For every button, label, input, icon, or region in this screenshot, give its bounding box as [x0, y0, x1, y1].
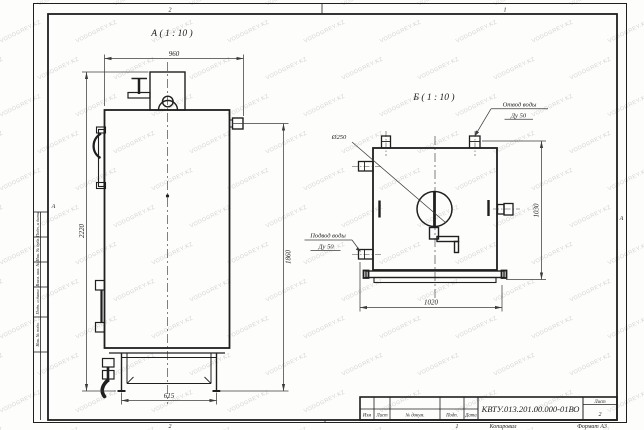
- svg-text:1020: 1020: [424, 299, 439, 307]
- upper-door-latch: [94, 127, 106, 189]
- zone-letter-right: А: [619, 216, 624, 222]
- zone-letter-left: А: [51, 204, 56, 210]
- svg-text:615: 615: [164, 392, 175, 400]
- center-mark: [166, 194, 169, 197]
- col-list: Лист: [375, 414, 388, 419]
- inlet-label-line2: Ду 50: [317, 244, 334, 251]
- outlet-label-line1: Отвод воды: [503, 102, 537, 109]
- view-a-front: А ( 1 : 10 ): [78, 28, 293, 405]
- boiler-body-outline: [105, 110, 230, 348]
- sheet-number: 2: [599, 412, 602, 418]
- svg-text:960: 960: [169, 50, 180, 58]
- lower-door-hinges: [96, 281, 105, 333]
- col-ndokum: № докум.: [404, 413, 424, 419]
- strip-caption-vzam-inv: Взам. инв. №: [35, 262, 40, 286]
- base-stand: [109, 353, 225, 391]
- strip-caption-inv-dubl: Инв. № дубл.: [35, 238, 40, 263]
- dimension-1030: 1030: [482, 141, 546, 280]
- dimension-615: 615: [122, 392, 217, 405]
- inlet-label-line1: Подвод воды: [309, 233, 346, 240]
- title-block: Изм Лист № докум. Подп. Дата КВТУ.013.20…: [360, 397, 617, 420]
- view-a-label: А ( 1 : 10 ): [150, 28, 192, 39]
- zone-number-top-2: 2: [169, 8, 172, 14]
- footer-copied: Копировал: [489, 424, 517, 430]
- doc-number: КВТУ.013.201.00.000-01ВО: [481, 404, 580, 414]
- footer-format: Формат А3: [577, 424, 607, 430]
- svg-text:1030: 1030: [533, 203, 541, 218]
- dimension-1860: 1860: [221, 124, 293, 392]
- inlet-pipe: [352, 250, 381, 260]
- svg-text:2220: 2220: [78, 224, 86, 239]
- view-b-label: Б ( 1 : 10 ): [412, 92, 454, 103]
- top-fitting-left: [382, 131, 391, 156]
- outlet-label-line2: Ду 50: [510, 113, 527, 120]
- drawing-canvas: Подп. и дата Инв. № дубл. Взам. инв. № П…: [0, 0, 644, 430]
- right-fitting: [493, 204, 520, 216]
- diameter-label: Ø250: [331, 134, 347, 141]
- col-izm: Изм: [362, 414, 371, 419]
- drawing-sheet: VODOGREY.KZVODOGREY.KZVODOGREY.KZVODOGRE…: [0, 0, 644, 430]
- strip-caption-inv-podl: Инв. № подл.: [35, 322, 40, 347]
- inlet-callout: Подвод воды Ду 50: [305, 233, 361, 252]
- lifting-eye-tab: [159, 101, 178, 111]
- strip-caption-podp-data-1: Подп. и дата: [35, 211, 40, 238]
- zone-number-bottom-1: 1: [456, 424, 459, 430]
- dimension-2220: 2220: [78, 72, 149, 391]
- svg-text:1860: 1860: [285, 250, 293, 265]
- dimension-960: 960: [105, 50, 244, 116]
- col-data: Дата: [464, 414, 477, 419]
- top-view-handle: [430, 228, 459, 253]
- col-podp: Подп.: [445, 414, 458, 419]
- sheet-header: Лист: [593, 400, 606, 405]
- view-b-top: Б ( 1 : 10 ): [305, 92, 549, 312]
- strip-caption-podp-data-2: Подп. и дата: [35, 289, 40, 316]
- damper-lever: [128, 78, 150, 98]
- zone-number-bottom-2: 2: [169, 424, 172, 430]
- sheet-footer: 2 1 Копировал Формат А3: [169, 424, 607, 430]
- outlet-callout: Отвод воды Ду 50: [475, 102, 549, 137]
- zone-number-top-1: 1: [504, 8, 507, 14]
- outlet-pipe: [470, 131, 481, 156]
